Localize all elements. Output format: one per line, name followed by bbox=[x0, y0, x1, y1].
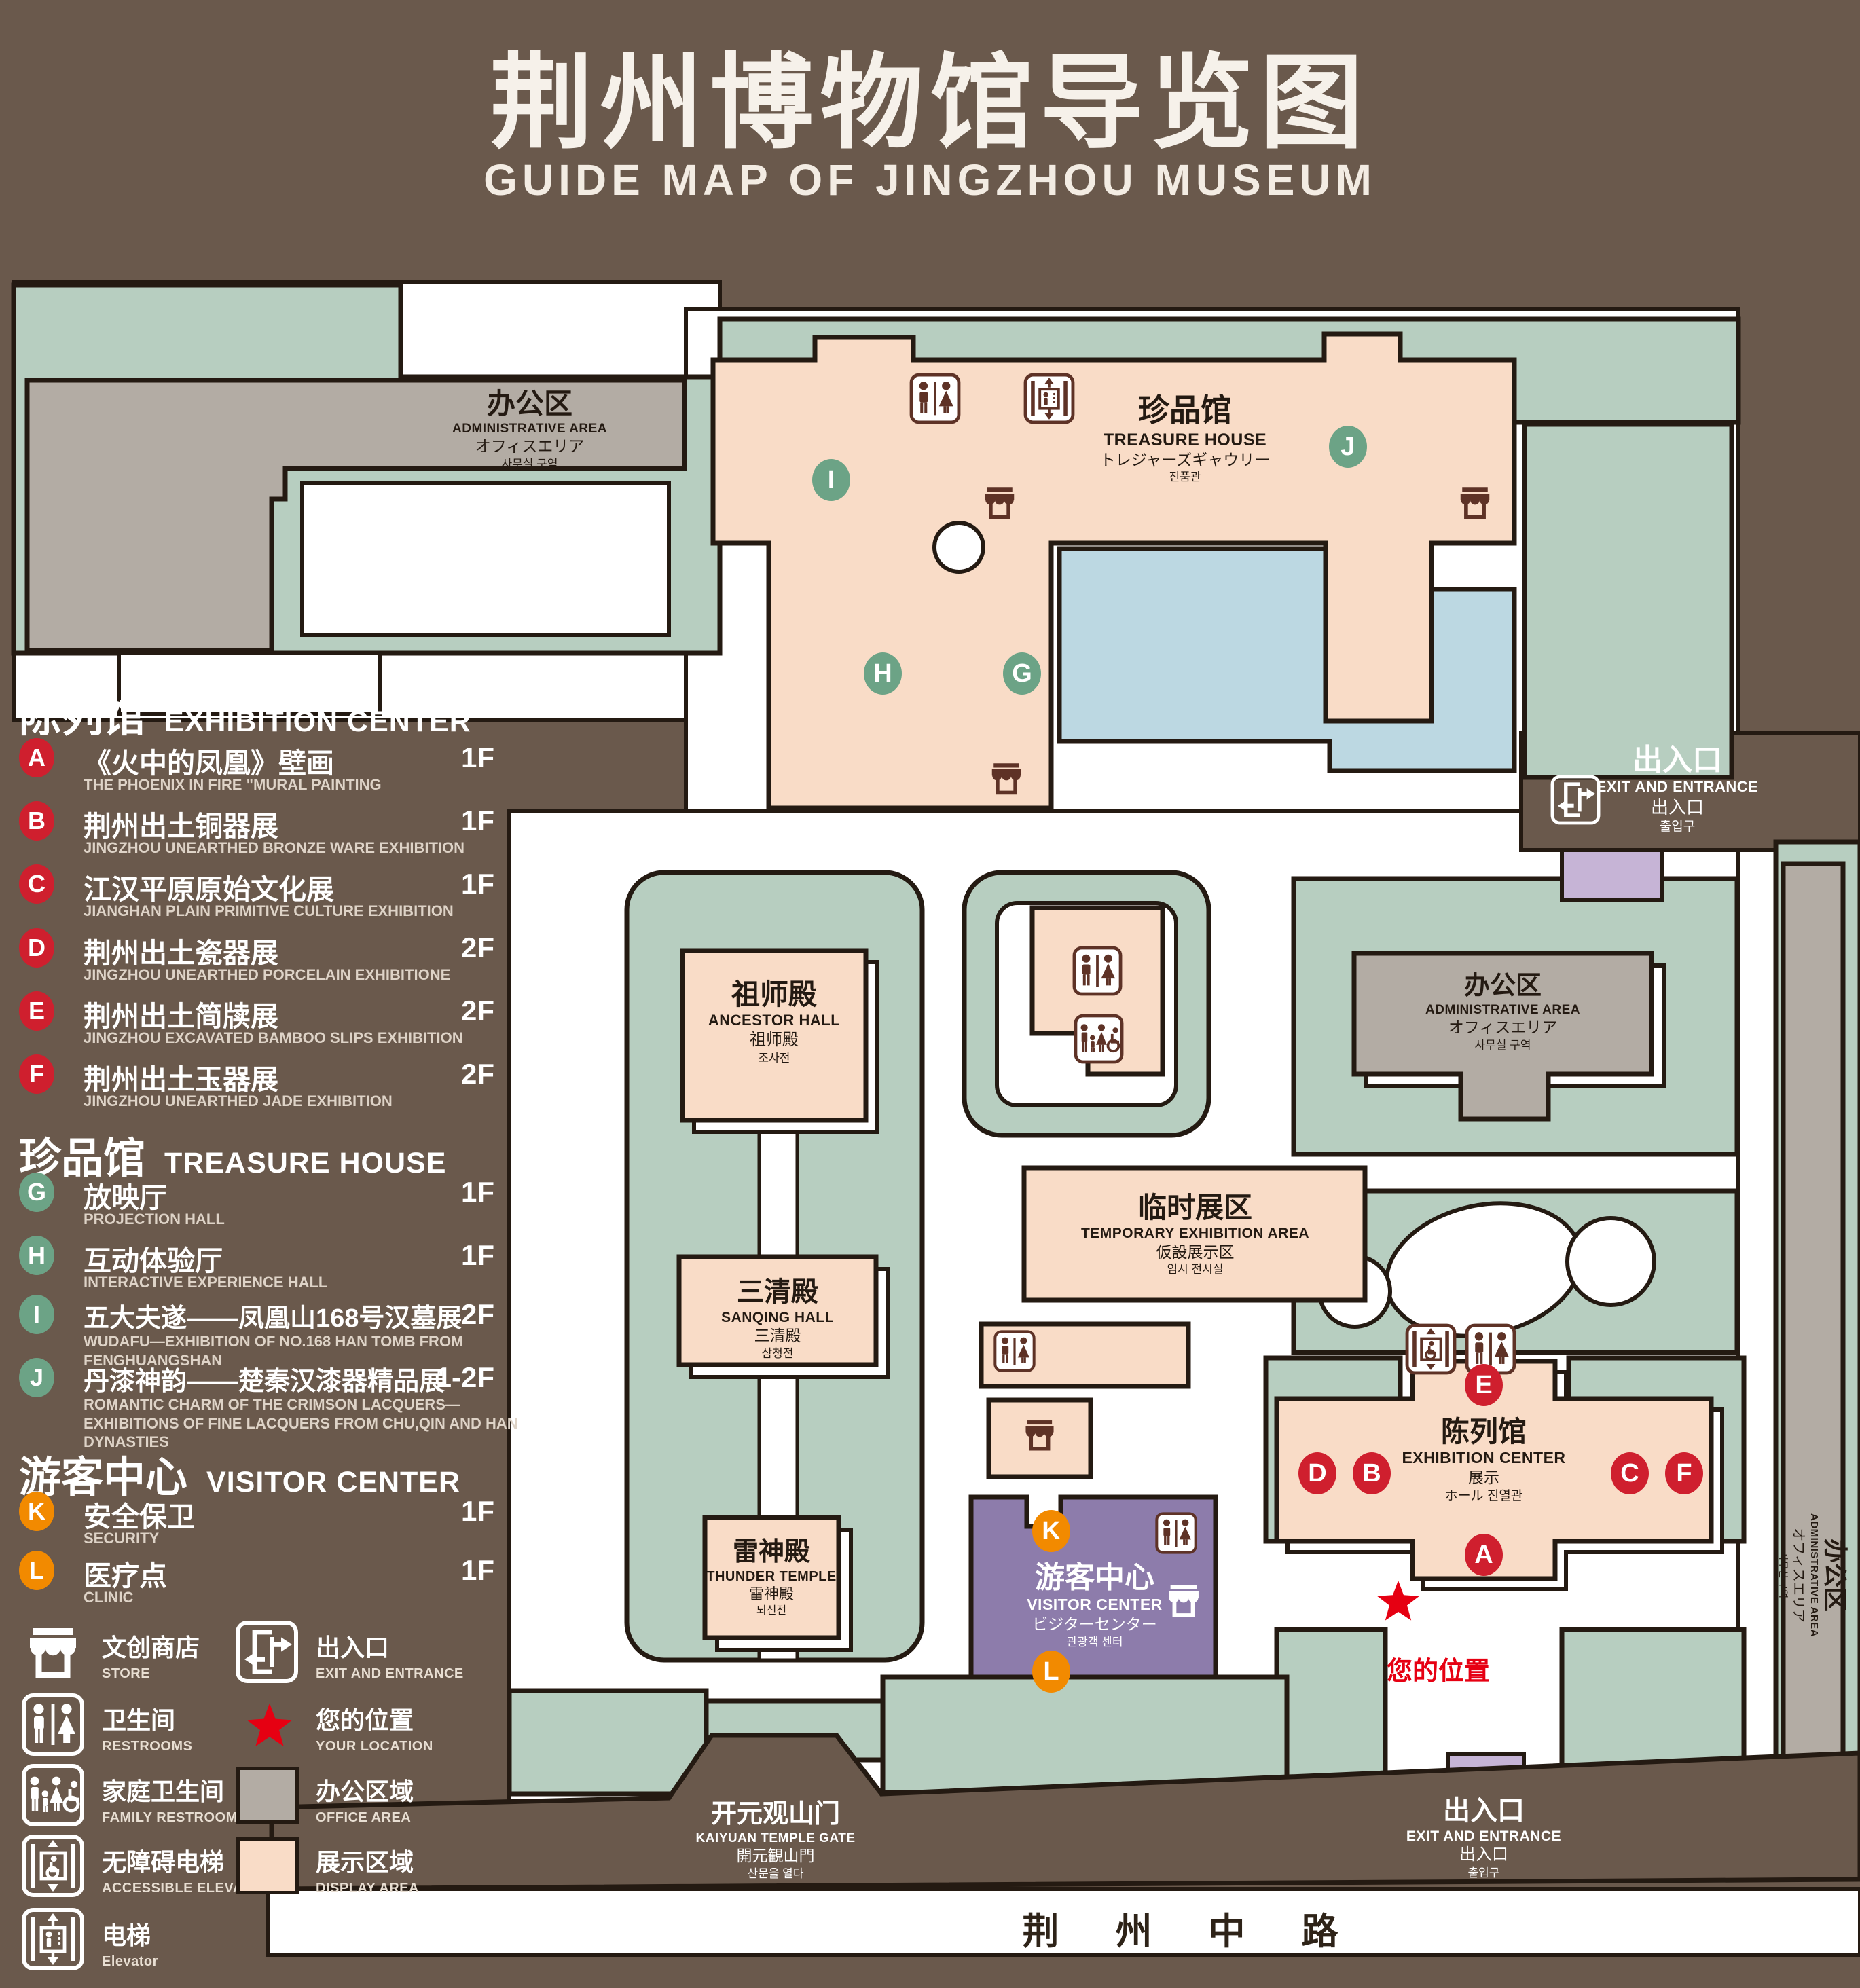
family-restroom-icon bbox=[1076, 1016, 1122, 1062]
label-thunder-temple: 雷神殿 THUNDER TEMPLE 雷神殿 뇌신전 bbox=[656, 1536, 887, 1619]
exit-icon bbox=[234, 1619, 299, 1685]
building-store-kiosk bbox=[989, 1400, 1091, 1477]
label-visitor-center: 游客中心 VISITOR CENTER ビジターセンター 관광객 센터 bbox=[966, 1559, 1224, 1651]
restroom-icon bbox=[911, 375, 959, 422]
label-exit-top: 出入口 EXIT AND ENTRANCE 出入口 출입구 bbox=[1535, 741, 1820, 836]
legend-symbol-restrooms: 卫生间RESTROOMS bbox=[102, 1701, 192, 1754]
map-marker-f: F bbox=[1665, 1452, 1703, 1494]
map-marker-l: L bbox=[1032, 1651, 1070, 1693]
map-marker-i: I bbox=[812, 459, 850, 501]
your-location-label: 您的位置 bbox=[1387, 1650, 1490, 1687]
legend-symbol-family-restrooms: 家庭卫生间FAMILY RESTROOMS bbox=[102, 1772, 247, 1826]
label-treasure-house: 珍品馆 TREASURE HOUSE トレジャーズギャウリー 진품관 bbox=[995, 391, 1375, 485]
office-area-swatch bbox=[236, 1767, 299, 1824]
restroom-icon bbox=[1156, 1513, 1195, 1552]
map-marker-j: J bbox=[1329, 426, 1367, 468]
entrance-block-topright bbox=[1562, 850, 1662, 900]
restroom-icon bbox=[995, 1331, 1034, 1370]
map-marker-h: H bbox=[864, 652, 902, 695]
family-restroom-icon bbox=[20, 1763, 86, 1828]
map-marker-e: E bbox=[1465, 1364, 1503, 1406]
legend-section-exhibition: 陈列馆EXHIBITION CENTER bbox=[19, 682, 471, 743]
map-marker-g: G bbox=[1003, 652, 1041, 695]
display-area-swatch bbox=[236, 1837, 299, 1894]
lawn-gate-left bbox=[509, 1691, 706, 1794]
label-temporary-exhibition: 临时展区 TEMPORARY EXHIBITION AREA 仮設展示区 임시 … bbox=[1036, 1190, 1355, 1278]
legend-symbol-display-area: 展示区域DISPLAY AREA bbox=[316, 1843, 419, 1896]
accessible-elevator-icon bbox=[20, 1833, 86, 1898]
label-sanqing-hall: 三清殿 SANQING HALL 三清殿 삼청전 bbox=[649, 1275, 907, 1362]
your-location-star-icon bbox=[241, 1696, 298, 1753]
label-exit-bottom: 出入口 EXIT AND ENTRANCE 出入口 출입구 bbox=[1355, 1794, 1613, 1881]
courtyard bbox=[302, 483, 669, 635]
map-marker-d: D bbox=[1298, 1452, 1336, 1494]
treasure-door-arc bbox=[934, 523, 983, 572]
label-kaiyuan-gate: 开元观山门 KAIYUAN TEMPLE GATE 開元観山門 산문을 열다 bbox=[633, 1798, 918, 1882]
accessible-elevator-icon bbox=[1407, 1325, 1455, 1373]
lawn-gate-right bbox=[883, 1677, 1287, 1792]
map-marker-a: A bbox=[1465, 1534, 1503, 1576]
store-icon bbox=[20, 1621, 86, 1687]
map-marker-c: C bbox=[1611, 1452, 1649, 1494]
legend-symbol-elevator: 电梯Elevator bbox=[102, 1916, 158, 1970]
legend-symbol-your-location: 您的位置YOUR LOCATION bbox=[316, 1701, 433, 1754]
label-admin-topleft: 办公区 ADMINISTRATIVE AREA オフィスエリア 사무실 구역 bbox=[367, 386, 693, 473]
map-marker-k: K bbox=[1032, 1510, 1070, 1552]
restroom-icon bbox=[1074, 948, 1120, 994]
label-ancestor-hall: 祖师殿 ANCESTOR HALL 祖师殿 조사전 bbox=[645, 976, 903, 1067]
legend-symbol-exit: 出入口EXIT AND ENTRANCE bbox=[316, 1628, 464, 1682]
museum-guide-map-poster: 荆州博物馆导览图 GUIDE MAP OF JINGZHOU MUSEUM bbox=[0, 0, 1860, 1988]
garden-pond-small2 bbox=[1567, 1218, 1654, 1305]
map-marker-b: B bbox=[1353, 1452, 1391, 1494]
lawn-exh-bottomleft bbox=[1277, 1630, 1385, 1792]
label-admin-right: 办公区 ADMINISTRATIVE AREA オフィスエリア 사무실 구역 bbox=[1360, 970, 1645, 1054]
label-admin-strip: 办公区 ADMINISTRATIVE AREA オフィスエリア 사무실 구역 bbox=[1776, 1433, 1850, 1718]
road-name: 荆 州 中 路 bbox=[1022, 1901, 1361, 1955]
lawn-treasure-right bbox=[1525, 424, 1732, 777]
elevator-icon bbox=[20, 1907, 86, 1972]
legend-symbol-store: 文创商店STORE bbox=[102, 1628, 200, 1682]
restroom-icon bbox=[20, 1692, 86, 1757]
legend-symbol-office-area: 办公区域OFFICE AREA bbox=[316, 1772, 414, 1826]
